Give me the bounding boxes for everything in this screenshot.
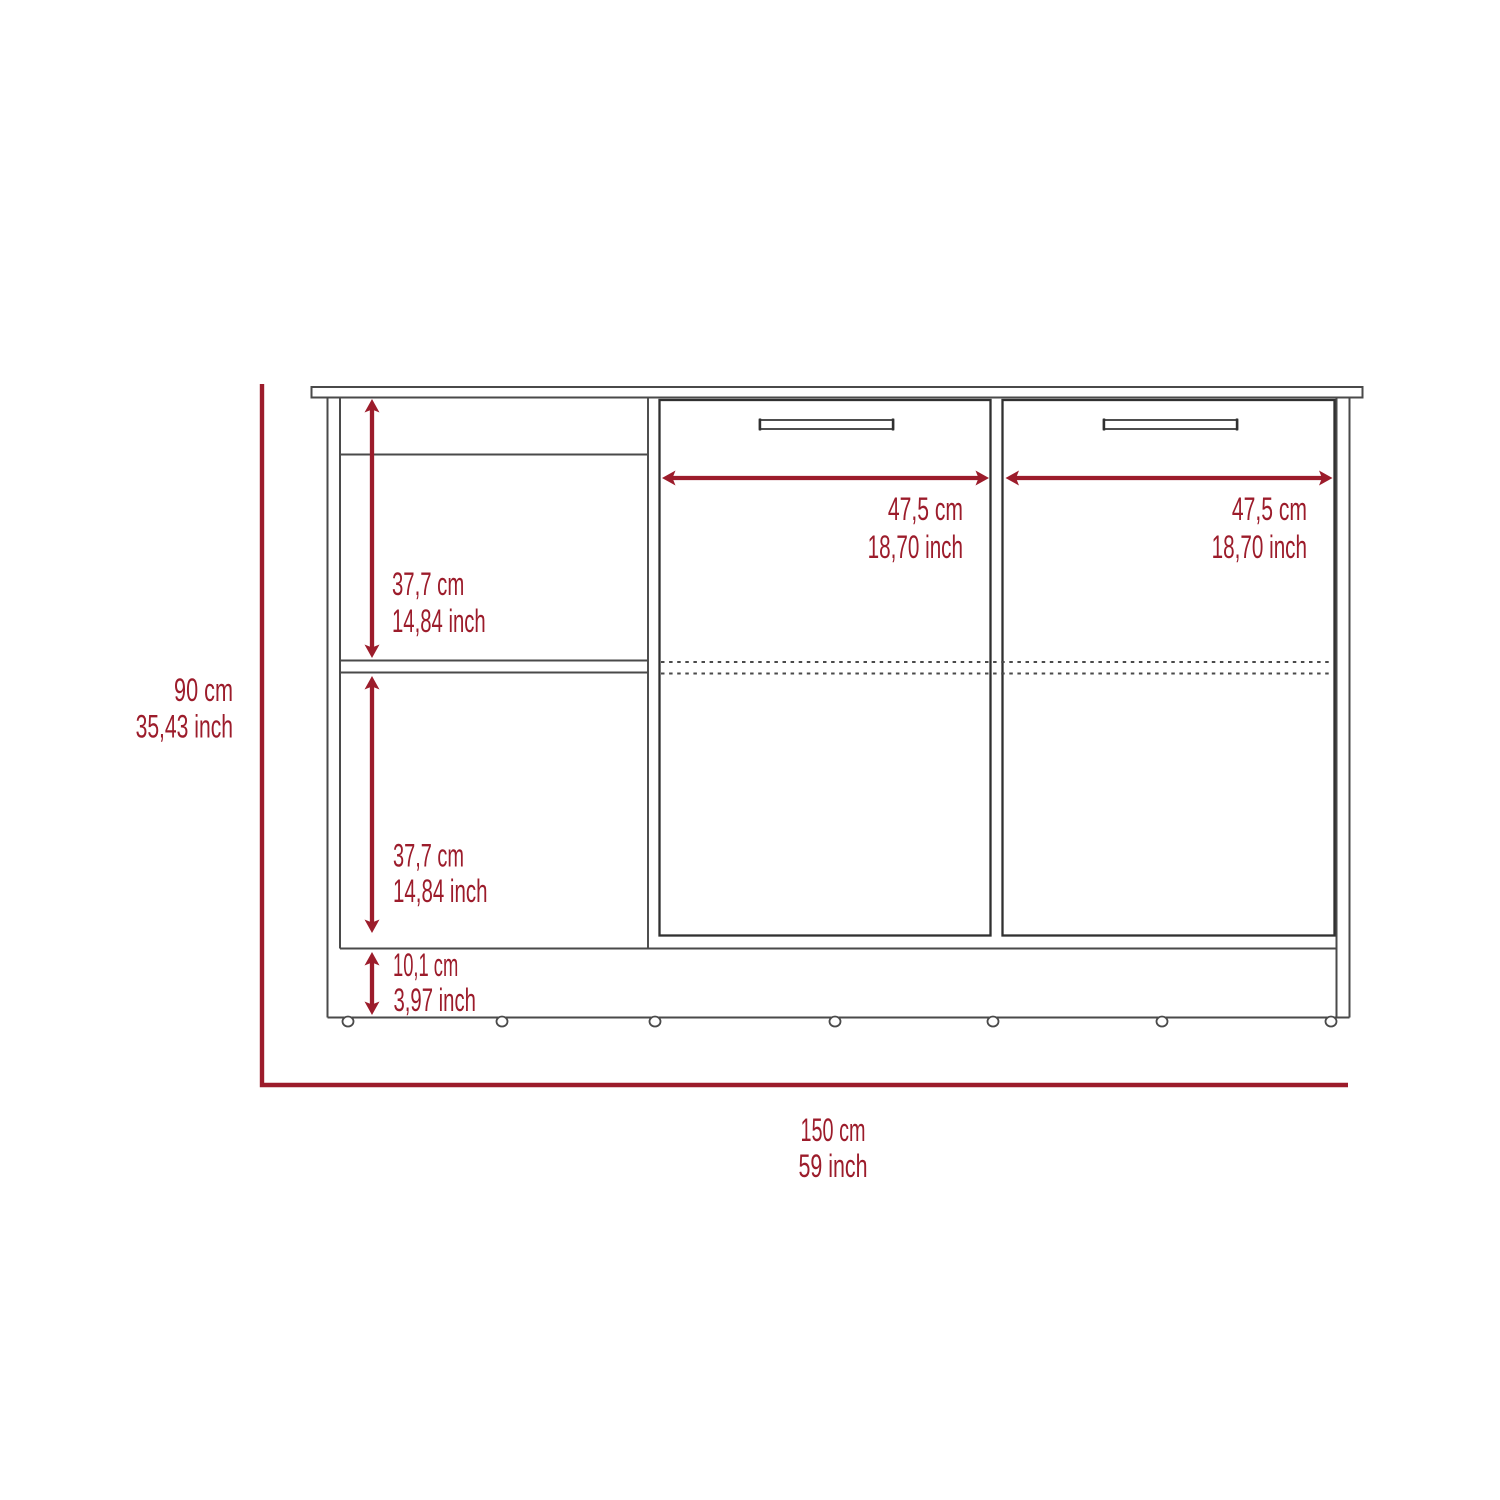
svg-text:35,43 inch: 35,43 inch <box>136 708 233 745</box>
svg-text:37,7 cm: 37,7 cm <box>393 838 464 874</box>
svg-text:10,1 cm: 10,1 cm <box>393 946 458 983</box>
svg-text:14,84 inch: 14,84 inch <box>393 872 487 909</box>
svg-text:150 cm: 150 cm <box>801 1112 866 1148</box>
svg-text:37,7 cm: 37,7 cm <box>392 565 464 602</box>
svg-text:14,84 inch: 14,84 inch <box>392 602 486 639</box>
svg-text:90 cm: 90 cm <box>174 672 233 708</box>
svg-text:18,70 inch: 18,70 inch <box>868 528 963 565</box>
svg-text:18,70 inch: 18,70 inch <box>1212 528 1307 565</box>
svg-text:47,5 cm: 47,5 cm <box>888 490 963 527</box>
svg-text:59 inch: 59 inch <box>798 1147 867 1184</box>
svg-text:3,97 inch: 3,97 inch <box>394 981 476 1018</box>
svg-text:47,5 cm: 47,5 cm <box>1232 490 1307 527</box>
